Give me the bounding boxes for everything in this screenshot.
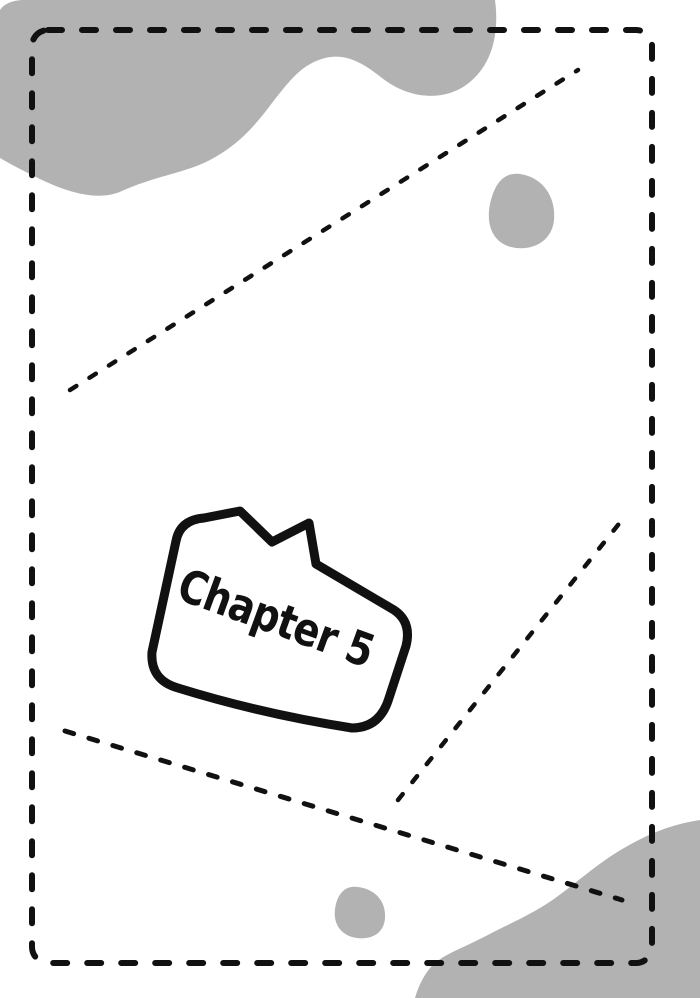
chapter-page-artwork: Chapter 5 (0, 0, 700, 998)
comic-page: Chapter 5 (0, 0, 700, 998)
blob-bottom-small (335, 887, 385, 939)
blob-top-right-small (489, 174, 554, 248)
background-blobs (0, 0, 700, 998)
chapter-speech-bubble: Chapter 5 (152, 511, 408, 728)
blob-bottom-right (415, 820, 700, 998)
dashed-line-bottom (65, 731, 622, 900)
dashed-line-middle-right (398, 520, 622, 800)
